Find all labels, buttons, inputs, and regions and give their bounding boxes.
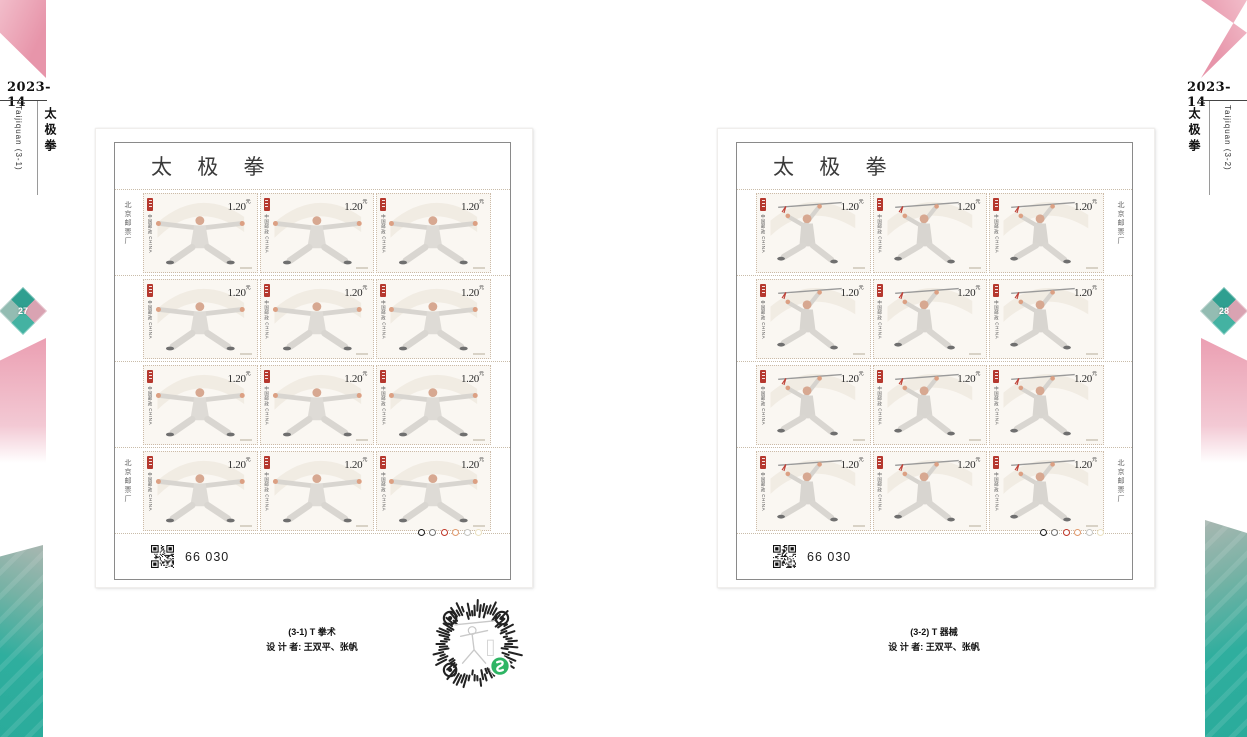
stamp: 中国邮政 CHINA 1.20元: [260, 193, 375, 273]
stamp-country-text: 中国邮政 CHINA: [264, 386, 270, 425]
pink-ribbon-mid-left: [0, 338, 46, 463]
stamp-country-text: 中国邮政 CHINA: [993, 214, 999, 253]
stamp: 中国邮政 CHINA 1.20元: [143, 365, 258, 445]
stamp-micro-imprint: [969, 525, 981, 527]
sidebar-right: 2023-14 太极拳 Taijiquan (3-2): [1187, 78, 1247, 208]
color-dot: [1086, 529, 1093, 536]
color-dot: [452, 529, 459, 536]
stamp-micro-imprint: [853, 353, 865, 355]
stamp-row: 中国邮政 CHINA 1.20元: [737, 361, 1132, 447]
stamp-denomination: 1.20元: [957, 197, 980, 215]
red-seal-icon: [760, 370, 766, 383]
teal-ribbon-bottom-left: [0, 545, 43, 737]
series-title-cn: 太极拳: [42, 107, 59, 155]
stamp-micro-imprint: [356, 353, 368, 355]
stamp-micro-imprint: [356, 267, 368, 269]
stamp: 中国邮政 CHINA 1.20元: [756, 193, 871, 273]
series-title-en: Taijiquan (3-1): [14, 105, 23, 171]
stamp-sheet-right: 太 极 拳: [717, 128, 1155, 588]
sheet-title-row: 太 极 拳: [737, 143, 1132, 189]
red-seal-icon: [877, 198, 883, 211]
printer-imprint: 北京邮票厂: [122, 201, 132, 246]
stamp-country-text: 中国邮政 CHINA: [380, 300, 386, 339]
stamp-micro-imprint: [1086, 525, 1098, 527]
stamp-denomination: 1.20元: [344, 455, 367, 473]
pink-ribbon-top-left: [0, 0, 46, 78]
caption-right: (3-2) T 器械 设 计 者: 王双平、张帆: [735, 625, 1133, 655]
stamp-sheet-left: 太 极 拳: [95, 128, 533, 588]
printer-imprint: 北京邮票厂: [1115, 459, 1125, 504]
stamp-micro-imprint: [969, 439, 981, 441]
red-seal-icon: [760, 284, 766, 297]
teal-ribbon-bottom-right: [1205, 520, 1247, 737]
stamp-row: 中国邮政 CHINA 1.20元: [115, 447, 510, 533]
stamp-row: 中国邮政 CHINA 1.20元: [737, 447, 1132, 533]
sheet-number: 66 030: [807, 550, 851, 564]
stamp: 中国邮政 CHINA 1.20元: [143, 451, 258, 531]
circular-miniprogram-code: [428, 596, 524, 692]
stamp: 中国邮政 CHINA 1.20元: [989, 193, 1104, 273]
stamp-denomination: 1.20元: [461, 455, 484, 473]
stamp-micro-imprint: [473, 353, 485, 355]
red-seal-icon: [993, 198, 999, 211]
stamp-country-text: 中国邮政 CHINA: [993, 300, 999, 339]
sheet-bottom-margin: 66 030: [737, 533, 1132, 579]
stamp-micro-imprint: [853, 439, 865, 441]
red-seal-icon: [877, 370, 883, 383]
page-number-diamond-left: 27: [0, 287, 47, 335]
stamp-denomination: 1.20元: [344, 283, 367, 301]
stamp-micro-imprint: [473, 439, 485, 441]
stamp-row: 中国邮政 CHINA 1.20元: [115, 275, 510, 361]
stamp-denomination: 1.20元: [461, 283, 484, 301]
color-registration-dots: [418, 529, 483, 536]
printer-imprint: 北京邮票厂: [122, 459, 132, 504]
red-seal-icon: [264, 284, 270, 297]
stamp-micro-imprint: [240, 267, 252, 269]
stamp: 中国邮政 CHINA 1.20元: [376, 279, 491, 359]
stamp-country-text: 中国邮政 CHINA: [264, 472, 270, 511]
red-seal-icon: [380, 284, 386, 297]
stamp-micro-imprint: [240, 439, 252, 441]
stamp-country-text: 中国邮政 CHINA: [760, 300, 766, 339]
stamp-denomination: 1.20元: [344, 197, 367, 215]
stamp: 中国邮政 CHINA 1.20元: [873, 193, 988, 273]
page-number: 28: [1207, 294, 1241, 328]
stamp-country-text: 中国邮政 CHINA: [760, 214, 766, 253]
stamp: 中国邮政 CHINA 1.20元: [376, 451, 491, 531]
stamp: 中国邮政 CHINA 1.20元: [873, 365, 988, 445]
sidebar-left: 2023-14 太极拳 Taijiquan (3-1): [0, 78, 60, 208]
stamp-denomination: 1.20元: [841, 283, 864, 301]
stamp-micro-imprint: [1086, 439, 1098, 441]
page-number-diamond-right: 28: [1200, 287, 1247, 335]
red-seal-icon: [380, 198, 386, 211]
red-seal-icon: [760, 456, 766, 469]
stamp-country-text: 中国邮政 CHINA: [264, 300, 270, 339]
stamp-denomination: 1.20元: [841, 369, 864, 387]
stamp-denomination: 1.20元: [1074, 197, 1097, 215]
stamp-country-text: 中国邮政 CHINA: [380, 386, 386, 425]
stamp: 中国邮政 CHINA 1.20元: [873, 451, 988, 531]
stamp-denomination: 1.20元: [841, 455, 864, 473]
stamp-row: 中国邮政 CHINA 1.20元: [115, 189, 510, 275]
stamp-country-text: 中国邮政 CHINA: [264, 214, 270, 253]
red-seal-icon: [877, 456, 883, 469]
stamp: 中国邮政 CHINA 1.20元: [756, 451, 871, 531]
color-dot: [1040, 529, 1047, 536]
stamp-denomination: 1.20元: [461, 369, 484, 387]
stamp-grid: 中国邮政 CHINA 1.20元: [737, 189, 1132, 533]
stamp-country-text: 中国邮政 CHINA: [147, 214, 153, 253]
sheet-bottom-margin: 66 030: [115, 533, 510, 579]
color-dot: [429, 529, 436, 536]
stamp-micro-imprint: [473, 267, 485, 269]
color-dot: [464, 529, 471, 536]
red-seal-icon: [147, 198, 153, 211]
stamp-country-text: 中国邮政 CHINA: [877, 300, 883, 339]
stamp-denomination: 1.20元: [228, 455, 251, 473]
designer-credit: 设 计 者: 王双平、张帆: [735, 640, 1133, 655]
stamp: 中国邮政 CHINA 1.20元: [260, 279, 375, 359]
sidebar-rule: [1200, 100, 1247, 101]
printer-imprint: 北京邮票厂: [1115, 201, 1125, 246]
stamp-row: 中国邮政 CHINA 1.20元: [737, 189, 1132, 275]
stamp-micro-imprint: [853, 525, 865, 527]
color-dot: [1051, 529, 1058, 536]
stamp: 中国邮政 CHINA 1.20元: [756, 279, 871, 359]
sheet-number: 66 030: [185, 550, 229, 564]
stamp-denomination: 1.20元: [1074, 455, 1097, 473]
red-seal-icon: [993, 370, 999, 383]
stamp-country-text: 中国邮政 CHINA: [993, 386, 999, 425]
red-seal-icon: [264, 198, 270, 211]
stamp-denomination: 1.20元: [228, 369, 251, 387]
color-dot: [475, 529, 482, 536]
stamp: 中国邮政 CHINA 1.20元: [873, 279, 988, 359]
stamp-denomination: 1.20元: [228, 197, 251, 215]
color-dot: [1074, 529, 1081, 536]
page-number: 27: [6, 294, 40, 328]
red-seal-icon: [264, 370, 270, 383]
stamp-denomination: 1.20元: [461, 197, 484, 215]
qr-code: [773, 545, 796, 568]
stamp-denomination: 1.20元: [957, 369, 980, 387]
stamp-country-text: 中国邮政 CHINA: [380, 214, 386, 253]
sheet-title-row: 太 极 拳: [115, 143, 510, 189]
stamp-country-text: 中国邮政 CHINA: [147, 300, 153, 339]
pink-ribbon-top-right: [1201, 0, 1247, 78]
stamp: 中国邮政 CHINA 1.20元: [989, 279, 1104, 359]
sidebar-rule: [0, 100, 47, 101]
stamp: 中国邮政 CHINA 1.20元: [989, 365, 1104, 445]
stamp-micro-imprint: [1086, 267, 1098, 269]
album-page: 27 28 2023-14 太极拳 Taijiquan (3-1) 2023-1…: [0, 0, 1247, 737]
series-title-en: Taijiquan (3-2): [1223, 105, 1232, 171]
stamp-country-text: 中国邮政 CHINA: [993, 472, 999, 511]
stamp-denomination: 1.20元: [1074, 283, 1097, 301]
red-seal-icon: [993, 284, 999, 297]
stamp-micro-imprint: [1086, 353, 1098, 355]
stamp-denomination: 1.20元: [841, 197, 864, 215]
color-dot: [1097, 529, 1104, 536]
stamp-denomination: 1.20元: [957, 283, 980, 301]
sheet-title: 太 极 拳: [151, 151, 275, 181]
stamp: 中国邮政 CHINA 1.20元: [989, 451, 1104, 531]
stamp-denomination: 1.20元: [957, 455, 980, 473]
stamp: 中国邮政 CHINA 1.20元: [376, 193, 491, 273]
stamp-country-text: 中国邮政 CHINA: [877, 214, 883, 253]
stamp: 中国邮政 CHINA 1.20元: [143, 193, 258, 273]
stamp: 中国邮政 CHINA 1.20元: [376, 365, 491, 445]
color-dot: [441, 529, 448, 536]
red-seal-icon: [380, 456, 386, 469]
stamp: 中国邮政 CHINA 1.20元: [143, 279, 258, 359]
stamp-country-text: 中国邮政 CHINA: [147, 472, 153, 511]
stamp-country-text: 中国邮政 CHINA: [760, 386, 766, 425]
stamp-country-text: 中国邮政 CHINA: [877, 472, 883, 511]
sheet-border: 太 极 拳: [114, 142, 511, 580]
stamp: 中国邮政 CHINA 1.20元: [260, 451, 375, 531]
red-seal-icon: [877, 284, 883, 297]
red-seal-icon: [380, 370, 386, 383]
red-seal-icon: [760, 198, 766, 211]
stamp-micro-imprint: [473, 525, 485, 527]
stamp-micro-imprint: [240, 525, 252, 527]
stamp-micro-imprint: [356, 525, 368, 527]
color-registration-dots: [1040, 529, 1105, 536]
stamp-micro-imprint: [240, 353, 252, 355]
red-seal-icon: [147, 456, 153, 469]
red-seal-icon: [993, 456, 999, 469]
stamp-row: 中国邮政 CHINA 1.20元: [115, 361, 510, 447]
stamp-country-text: 中国邮政 CHINA: [380, 472, 386, 511]
stamp-micro-imprint: [969, 353, 981, 355]
stamp-country-text: 中国邮政 CHINA: [760, 472, 766, 511]
color-dot: [1063, 529, 1070, 536]
qr-code: [151, 545, 174, 568]
stamp-row: 中国邮政 CHINA 1.20元: [737, 275, 1132, 361]
sidebar-divider: [1209, 101, 1210, 195]
sidebar-divider: [37, 101, 38, 195]
stamp-denomination: 1.20元: [1074, 369, 1097, 387]
red-seal-icon: [147, 370, 153, 383]
stamp-micro-imprint: [356, 439, 368, 441]
color-dot: [418, 529, 425, 536]
series-title-cn: 太极拳: [1186, 107, 1203, 155]
stamp-country-text: 中国邮政 CHINA: [147, 386, 153, 425]
stamp-micro-imprint: [969, 267, 981, 269]
stamp-code-title: (3-2) T 器械: [735, 625, 1133, 640]
stamp-country-text: 中国邮政 CHINA: [877, 386, 883, 425]
red-seal-icon: [147, 284, 153, 297]
stamp-micro-imprint: [853, 267, 865, 269]
stamp: 中国邮政 CHINA 1.20元: [260, 365, 375, 445]
stamp-grid: 中国邮政 CHINA 1.20元: [115, 189, 510, 533]
issue-number: 2023-14: [1187, 80, 1240, 110]
pink-ribbon-mid-right: [1201, 338, 1247, 463]
red-seal-icon: [264, 456, 270, 469]
sheet-border: 太 极 拳: [736, 142, 1133, 580]
stamp: 中国邮政 CHINA 1.20元: [756, 365, 871, 445]
sheet-title: 太 极 拳: [773, 151, 897, 181]
stamp-denomination: 1.20元: [228, 283, 251, 301]
stamp-denomination: 1.20元: [344, 369, 367, 387]
